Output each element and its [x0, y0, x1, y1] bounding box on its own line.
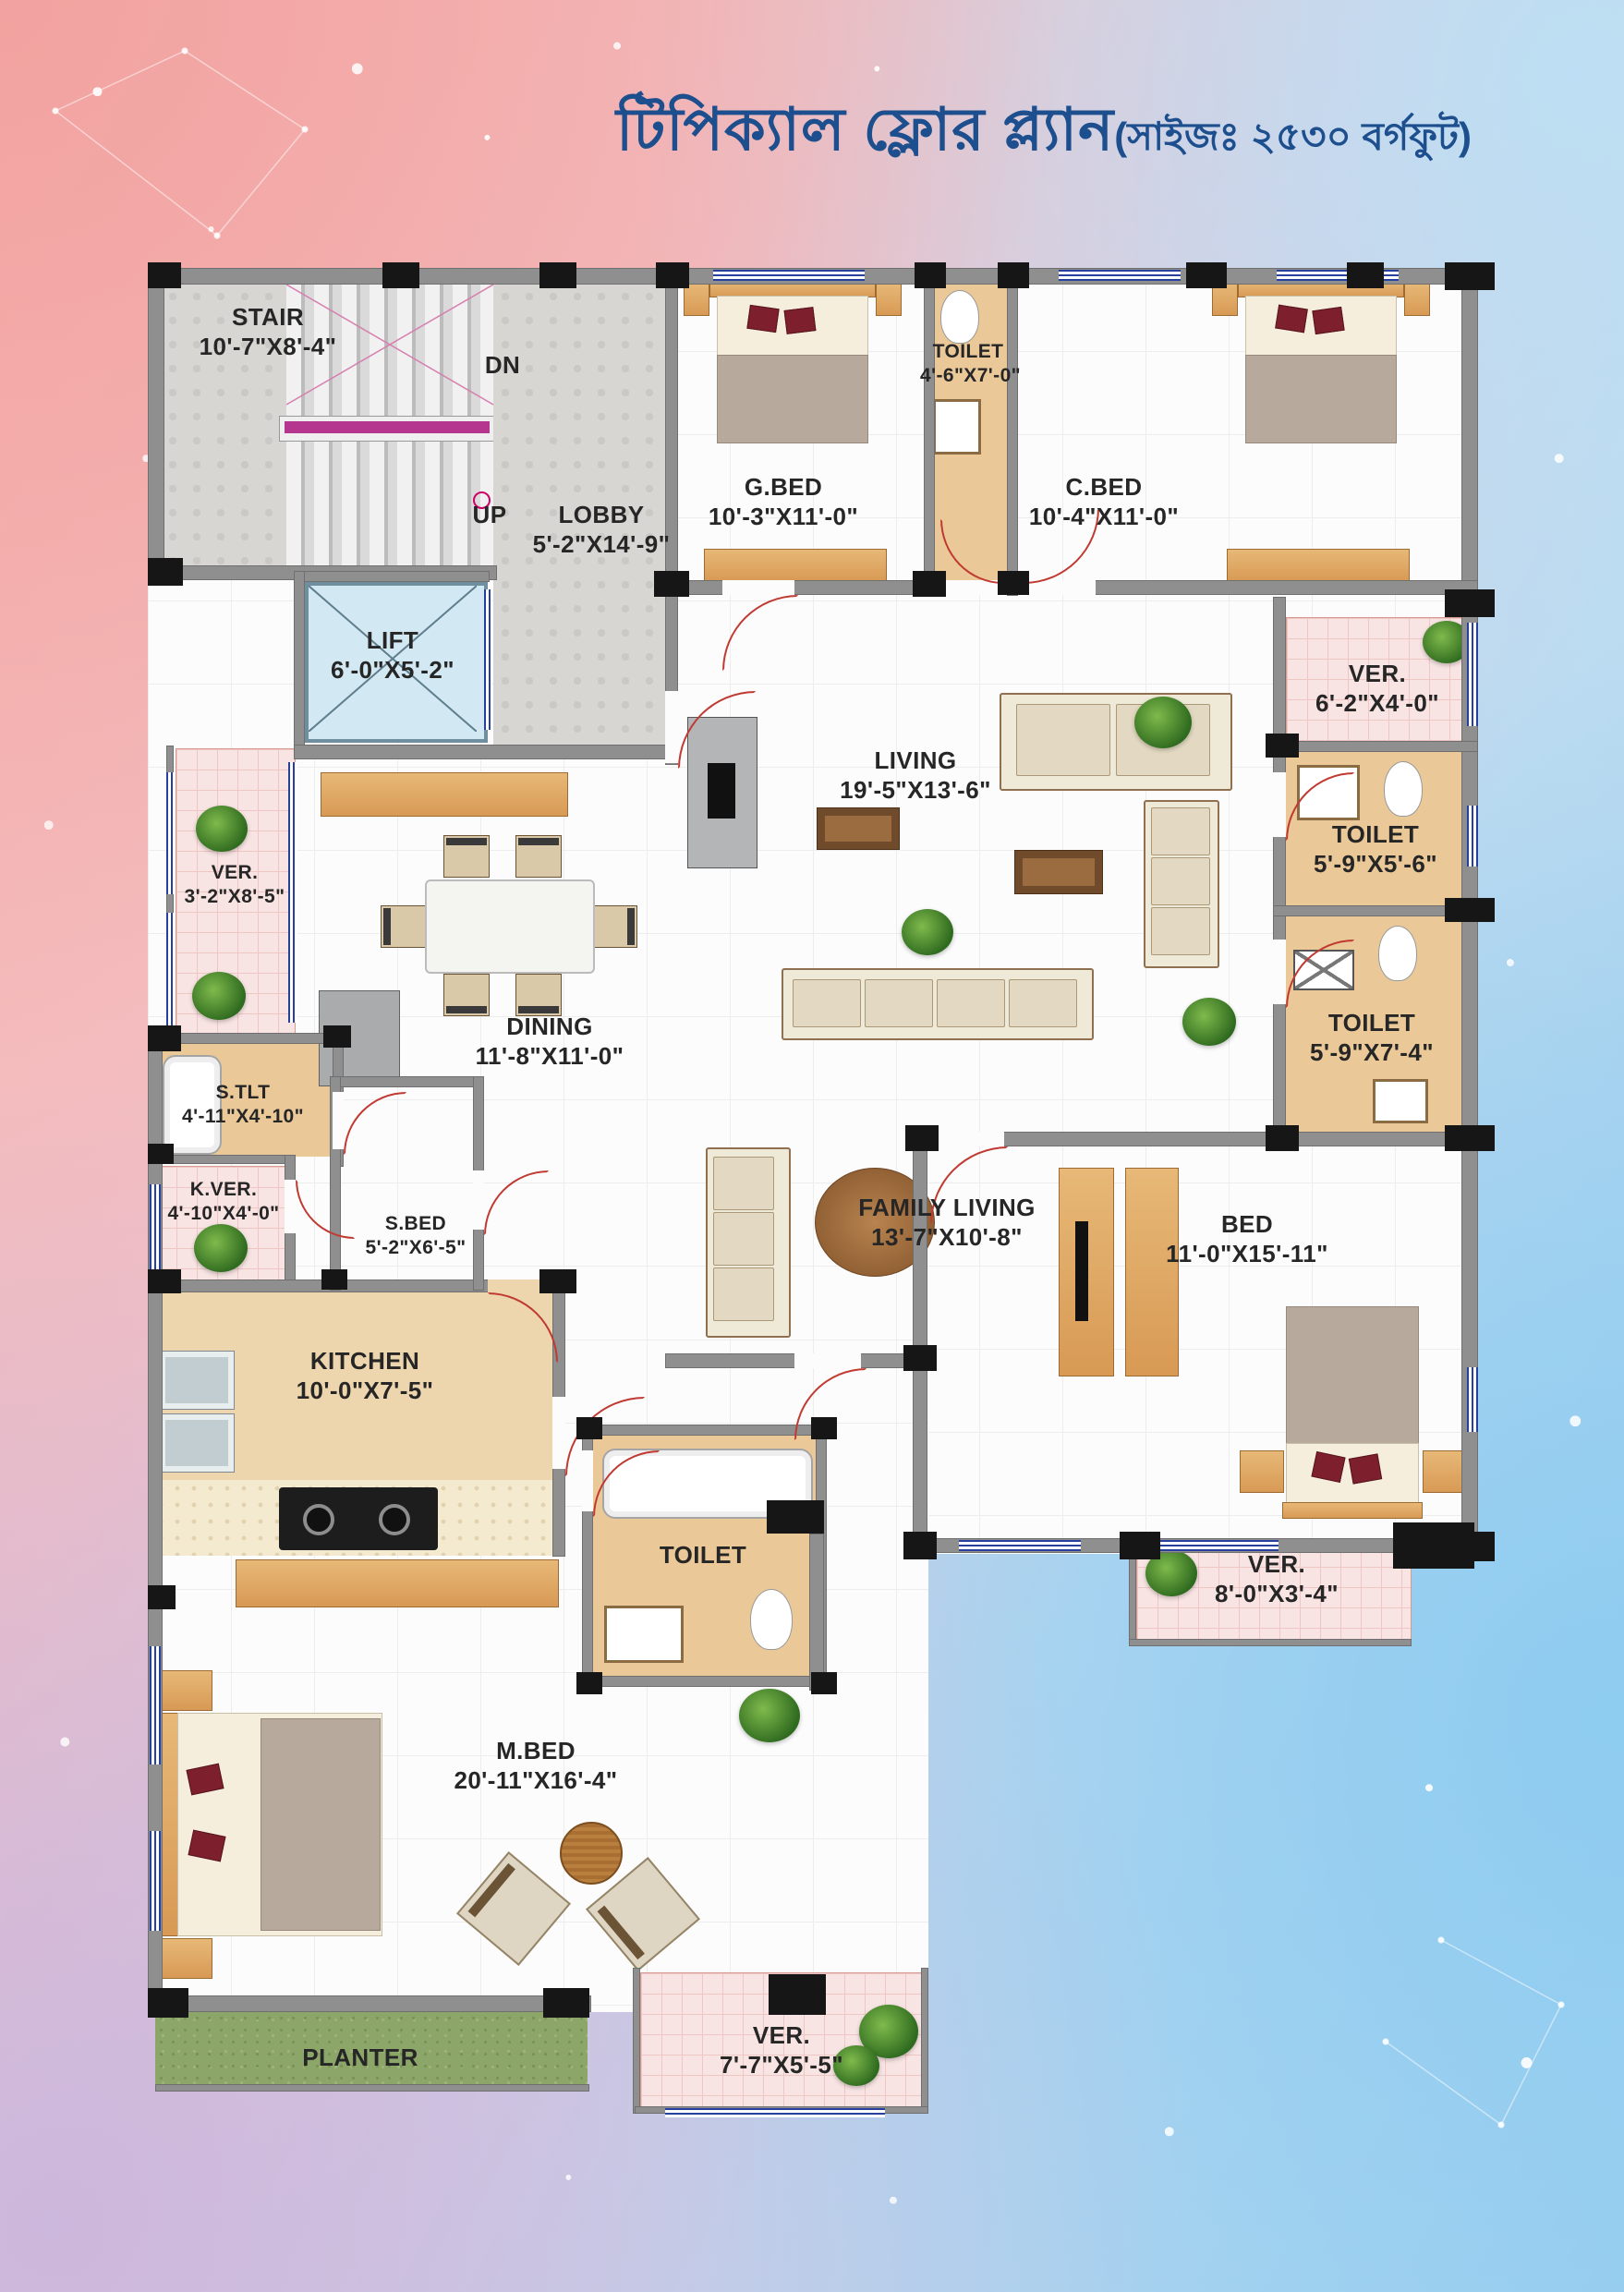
mbed-side-table: [157, 1670, 212, 1711]
label-dn: DN: [475, 351, 530, 381]
bed-side-table: [1240, 1450, 1284, 1493]
column: [1347, 262, 1384, 288]
column: [539, 262, 576, 288]
gbed-pillow: [784, 307, 817, 334]
label-lift: LIFT6'-0"X5'-2": [307, 626, 479, 685]
column: [1120, 1532, 1160, 1559]
wall: [665, 1353, 913, 1368]
sofa-cushion: [865, 979, 933, 1027]
label-sbed: S.BED5'-2"X6'-5": [342, 1212, 490, 1259]
stove-burner-icon: [303, 1504, 334, 1535]
plant-icon: [739, 1689, 800, 1742]
plant-icon: [902, 909, 953, 955]
column: [1445, 262, 1495, 290]
wall: [1273, 741, 1478, 752]
window: [166, 913, 176, 1025]
window: [1467, 1367, 1478, 1432]
plant-icon: [194, 1224, 248, 1272]
bed-room-wardrobe: [1125, 1168, 1179, 1376]
door-gap: [1273, 772, 1286, 837]
sofa-cushion: [1151, 857, 1210, 905]
label-stair: STAIR10'-7"X8'-4": [171, 303, 365, 361]
gbed-blanket: [717, 355, 868, 443]
bed-blanket: [1286, 1306, 1419, 1445]
door-gap: [552, 1397, 565, 1469]
toilet-r2-commode-icon: [1378, 926, 1417, 981]
column: [148, 262, 181, 288]
window: [959, 1540, 1081, 1551]
label-toilet-top: TOILET4'-6"X7'-0": [920, 340, 1016, 387]
floor-plan: STAIR10'-7"X8'-4" DN UP LOBBY5'-2"X14'-9…: [148, 259, 1478, 2134]
label-up: UP: [466, 501, 514, 530]
column: [913, 571, 946, 597]
label-dining: DINING11'-8"X11'-0": [453, 1013, 647, 1071]
column: [148, 1144, 174, 1164]
label-planter: PLANTER: [277, 2043, 443, 2073]
column: [148, 1585, 176, 1609]
mbed-blanket: [261, 1718, 381, 1931]
mbed-side-table: [157, 1938, 212, 1979]
label-living: LIVING19'-5"X13'-6": [809, 746, 1022, 805]
label-ver-left: VER.3'-2"X8'-5": [174, 861, 296, 908]
wall: [148, 268, 164, 580]
sofa-cushion: [713, 1212, 774, 1266]
window: [713, 270, 865, 281]
dining-chair: [443, 835, 490, 878]
plant-icon: [1182, 998, 1236, 1046]
lift-door: [484, 589, 491, 730]
wall: [1129, 1639, 1412, 1646]
plant-icon: [192, 972, 246, 1020]
bed-headboard: [1282, 1502, 1423, 1519]
column: [1266, 1125, 1299, 1151]
door-gap: [333, 1092, 344, 1149]
wall: [148, 1995, 591, 2012]
dining-chair: [515, 974, 562, 1016]
column: [148, 1269, 181, 1293]
page-title: টিপিক্যাল ফ্লোর প্ল্যান(সাইজঃ ২৫৩০ বর্গফ…: [554, 85, 1533, 184]
sofa-cushion: [793, 979, 861, 1027]
sofa-cushion: [713, 1157, 774, 1210]
wall: [294, 571, 490, 582]
cbed-pillow: [1275, 305, 1308, 333]
wall: [330, 1076, 484, 1087]
stove-burner-icon: [379, 1504, 410, 1535]
wall: [921, 1968, 928, 2114]
column: [539, 1269, 576, 1293]
door-gap: [722, 580, 794, 595]
wall: [924, 268, 935, 596]
title-size-note: (সাইজঃ ২৫৩০ বর্গফুট): [1114, 115, 1472, 158]
wall: [809, 1534, 824, 1691]
window: [665, 2108, 885, 2117]
sofa-cushion: [937, 979, 1005, 1027]
label-lobby: LOBBY5'-2"X14'-9": [515, 501, 687, 559]
label-bed: BED11'-0"X15'-11": [1136, 1210, 1358, 1268]
cbed-pillow: [1312, 307, 1344, 334]
label-mbed: M.BED20'-11"X16'-4": [425, 1737, 647, 1795]
column: [1393, 1522, 1474, 1569]
cbed-side-table: [1404, 283, 1430, 316]
column: [903, 1345, 937, 1371]
wall: [294, 745, 673, 759]
column: [148, 558, 183, 586]
living-tv-icon: [708, 763, 735, 819]
plant-icon: [1134, 697, 1192, 748]
page: { "title": { "main": "টিপিক্যাল ফ্লোর প্…: [0, 0, 1624, 2292]
wall: [1007, 268, 1018, 596]
column: [998, 262, 1029, 288]
toilet-r1-commode-icon: [1384, 761, 1423, 817]
column: [905, 1125, 939, 1151]
column: [148, 1988, 188, 2018]
stair-rail-inner: [285, 421, 490, 433]
mbed-round-table: [560, 1822, 623, 1885]
kitchen-stove-icon: [279, 1487, 438, 1550]
gbed-wardrobe: [704, 549, 887, 582]
column: [1445, 898, 1495, 922]
column: [576, 1417, 602, 1439]
kitchen-sink-icon: [159, 1413, 235, 1473]
title-bangla: টিপিক্যাল ফ্লোর প্ল্যান: [616, 96, 1114, 163]
door-gap: [1273, 940, 1286, 1004]
label-kver: K.VER.4'-10"X4'-0": [150, 1178, 297, 1225]
dining-table: [425, 879, 595, 974]
mbed-headboard: [161, 1713, 179, 1936]
dining-chair: [381, 905, 427, 948]
kitchen-sink-icon: [159, 1351, 235, 1410]
door-gap: [665, 691, 678, 763]
column: [903, 1532, 937, 1559]
window: [1059, 270, 1181, 281]
label-ver-right: VER.6'-2"X4'-0": [1291, 660, 1463, 718]
column: [382, 262, 419, 288]
column: [543, 1988, 589, 2018]
column: [1186, 262, 1227, 288]
column: [811, 1672, 837, 1694]
label-kitchen: KITCHEN10'-0"X7'-5": [249, 1347, 480, 1405]
column: [767, 1500, 824, 1534]
window: [150, 1646, 161, 1764]
bed-pillow: [1349, 1453, 1382, 1484]
dining-chair: [443, 974, 490, 1016]
dining-chair: [515, 835, 562, 878]
column: [1266, 734, 1299, 758]
mbed-wardrobe: [236, 1559, 559, 1607]
window: [1467, 623, 1478, 726]
door-gap: [930, 1132, 1004, 1146]
toilet-top-commode-icon: [940, 290, 979, 344]
gbed-pillow: [746, 305, 779, 333]
column: [323, 1025, 351, 1048]
column: [998, 571, 1029, 595]
label-stlt: S.TLT4'-11"X4'-10": [155, 1081, 331, 1128]
sofa-cushion: [1151, 907, 1210, 955]
bed-side-table: [1423, 1450, 1465, 1493]
wall: [633, 1968, 640, 2114]
gbed-side-table: [876, 283, 902, 316]
label-toilet-r2: TOILET5'-9"X7'-4": [1288, 1009, 1456, 1067]
mtoilet-basin-icon: [604, 1606, 684, 1663]
label-family-living: FAMILY LIVING13'-7"X10'-8": [822, 1194, 1072, 1252]
wall: [582, 1676, 827, 1687]
window: [1467, 806, 1478, 867]
label-cbed: C.BED10'-4"X11'-0": [1007, 473, 1201, 531]
cbed-wardrobe: [1227, 549, 1410, 582]
label-mtoilet: TOILET: [643, 1541, 763, 1570]
coffee-table: [1014, 850, 1103, 894]
column: [811, 1417, 837, 1439]
column: [1445, 1125, 1495, 1151]
door-gap: [794, 1353, 861, 1368]
sofa-cushion: [1009, 979, 1077, 1027]
cbed-blanket: [1245, 355, 1397, 443]
column: [576, 1672, 602, 1694]
wall: [1273, 597, 1286, 1142]
label-ver-br: VER.8'-0"X3'-4": [1184, 1550, 1369, 1608]
toilet-top-basin-icon: [933, 399, 981, 455]
column: [915, 262, 946, 288]
column: [1445, 589, 1495, 617]
sofa-cushion: [713, 1267, 774, 1321]
toilet-r2-basin-icon: [1373, 1079, 1428, 1123]
sofa-cushion: [1016, 704, 1110, 776]
label-toilet-r1: TOILET5'-9"X5'-6": [1291, 820, 1460, 879]
family-tv-icon: [1075, 1221, 1088, 1321]
window: [150, 1831, 161, 1931]
column: [654, 571, 689, 597]
dining-chair: [591, 905, 637, 948]
mtoilet-commode-icon: [750, 1589, 793, 1650]
wall: [155, 2084, 589, 2092]
wall: [294, 571, 305, 756]
label-gbed: G.BED10'-3"X11'-0": [691, 473, 876, 531]
coffee-table: [817, 807, 900, 850]
column: [656, 262, 689, 288]
dining-sideboard: [321, 772, 568, 817]
sofa-cushion: [1151, 807, 1210, 855]
column: [769, 1974, 826, 2015]
plant-icon: [196, 806, 248, 852]
column: [321, 1269, 347, 1290]
label-ver-b: VER.7'-7"X5'-5": [698, 2021, 865, 2080]
column: [148, 1025, 181, 1051]
